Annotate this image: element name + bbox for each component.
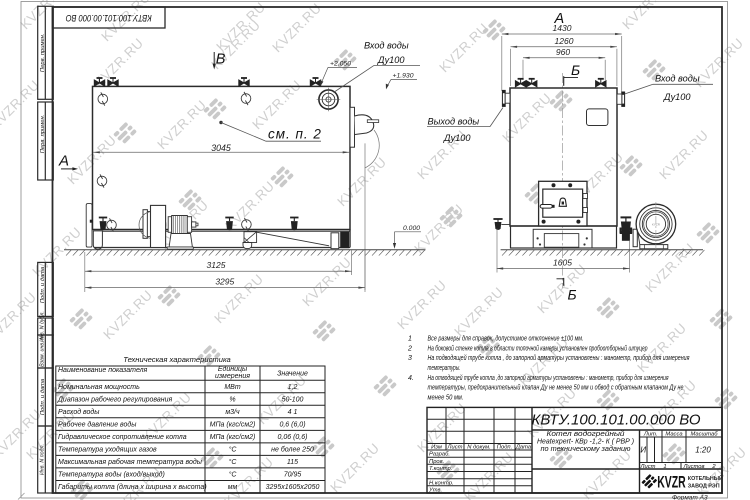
svg-text:Температура воды (вход/выход): Температура воды (вход/выход) bbox=[58, 471, 165, 479]
svg-text:В: В bbox=[216, 52, 226, 68]
svg-text:Ду100: Ду100 bbox=[377, 55, 405, 65]
svg-text:Масса: Масса bbox=[665, 431, 683, 437]
svg-text:1430: 1430 bbox=[553, 23, 572, 33]
svg-text:Б: Б bbox=[568, 287, 577, 303]
svg-text:Гидравлическое сопротивление к: Гидравлическое сопротивление котла bbox=[58, 433, 187, 441]
svg-text:Подп.: Подп. bbox=[497, 444, 512, 450]
svg-text:3045: 3045 bbox=[211, 143, 231, 153]
svg-text:Габариты котла (длина х ширина: Габариты котла (длина х ширина х высота) bbox=[58, 483, 207, 491]
svg-text:Масштаб: Масштаб bbox=[690, 431, 718, 437]
svg-text:МВт: МВт bbox=[224, 384, 241, 391]
svg-text:МПа (кгс/см2): МПа (кгс/см2) bbox=[210, 434, 256, 441]
svg-text:температуры.: температуры. bbox=[428, 365, 461, 372]
svg-text:N докум.: N докум. bbox=[467, 444, 490, 450]
svg-text:Вход воды: Вход воды bbox=[655, 74, 700, 84]
svg-text:И: И bbox=[640, 446, 646, 455]
svg-text:960: 960 bbox=[556, 47, 570, 57]
svg-text:+2.050: +2.050 bbox=[330, 61, 351, 68]
svg-text:не более 250: не более 250 bbox=[271, 446, 314, 454]
svg-text:Наименование показателя: Наименование показателя bbox=[58, 367, 148, 374]
svg-text:3: 3 bbox=[408, 355, 412, 362]
svg-text:Пров.: Пров. bbox=[429, 459, 444, 465]
svg-text:Перв. примен.: Перв. примен. bbox=[40, 34, 46, 73]
svg-text:3125: 3125 bbox=[207, 260, 226, 270]
svg-text:+1.930: +1.930 bbox=[393, 73, 414, 80]
svg-text:4 1: 4 1 bbox=[288, 409, 298, 416]
svg-text:температуры, предохранительный: температуры, предохранительный клапан Ду… bbox=[428, 384, 684, 392]
svg-text:КОТЕЛЬНЫЙ: КОТЕЛЬНЫЙ bbox=[688, 474, 723, 482]
svg-text:°С: °С bbox=[229, 458, 238, 466]
svg-text:Температура уходящих газов: Температура уходящих газов bbox=[58, 446, 157, 454]
svg-text:Дата: Дата bbox=[515, 444, 532, 450]
svg-text:по техническому заданию: по техническому заданию bbox=[541, 444, 632, 453]
svg-text:115: 115 bbox=[287, 459, 298, 466]
svg-text:0.000: 0.000 bbox=[403, 225, 420, 232]
svg-text:Перв. примен.: Перв. примен. bbox=[40, 115, 46, 154]
svg-text:1,2: 1,2 bbox=[288, 384, 298, 391]
svg-text:мм: мм bbox=[228, 484, 238, 491]
svg-text:1:20: 1:20 bbox=[695, 446, 711, 455]
svg-text:°С: °С bbox=[229, 446, 238, 454]
svg-text:КВТУ.100.101.00.000 ВО: КВТУ.100.101.00.000 ВО bbox=[532, 413, 701, 429]
svg-text:Н.контр.: Н.контр. bbox=[429, 480, 454, 486]
svg-text:КВТУ.100.101.00.000 ВО: КВТУ.100.101.00.000 ВО bbox=[65, 12, 151, 23]
svg-text:А: А bbox=[58, 153, 69, 170]
svg-text:Подп. и дата: Подп. и дата bbox=[40, 378, 46, 415]
svg-text:Выход воды: Выход воды bbox=[428, 116, 480, 126]
svg-text:1605: 1605 bbox=[553, 258, 572, 268]
svg-text:На отводящей трубе котла ,до з: На отводящей трубе котла ,до запорной ар… bbox=[428, 374, 669, 382]
svg-text:измерения: измерения bbox=[215, 373, 250, 380]
svg-text:Формат А3: Формат А3 bbox=[672, 494, 708, 500]
svg-text:Изм: Изм bbox=[431, 444, 442, 450]
svg-text:1260: 1260 bbox=[555, 36, 574, 46]
svg-text:Вход воды: Вход воды bbox=[364, 41, 409, 51]
svg-text:Б: Б bbox=[571, 62, 580, 78]
svg-text:Разраб.: Разраб. bbox=[429, 452, 450, 458]
svg-text:менее 50 мм.: менее 50 мм. bbox=[428, 394, 464, 401]
svg-text:Взам. инв. N: Взам. инв. N bbox=[40, 336, 46, 367]
svg-text:Диапазон рабочего регулировани: Диапазон рабочего регулирования bbox=[57, 396, 173, 404]
svg-text:3295х1605х2050: 3295х1605х2050 bbox=[266, 484, 320, 491]
svg-text:4.: 4. bbox=[408, 375, 414, 382]
svg-text:Расход воды: Расход воды bbox=[58, 408, 100, 416]
svg-text:Лист: Лист bbox=[640, 464, 656, 470]
svg-text:50-100: 50-100 bbox=[282, 397, 304, 404]
svg-text:Единицы: Единицы bbox=[218, 365, 248, 373]
svg-text:Подп. и дата: Подп. и дата bbox=[40, 266, 46, 303]
svg-text:Т.контр.: Т.контр. bbox=[429, 466, 452, 472]
svg-text:На боковой стенке котла в обла: На боковой стенке котла в области топочн… bbox=[428, 344, 648, 352]
svg-text:1: 1 bbox=[408, 336, 412, 343]
svg-text:см. п. 2: см. п. 2 bbox=[268, 127, 322, 142]
svg-text:°С: °С bbox=[229, 471, 238, 479]
svg-text:Инв. N подл.: Инв. N подл. bbox=[40, 444, 46, 475]
svg-text:Номинальная мощность: Номинальная мощность bbox=[58, 384, 140, 391]
svg-text:ЗАВОД РЭП: ЗАВОД РЭП bbox=[688, 484, 720, 490]
svg-text:1: 1 bbox=[663, 464, 666, 470]
svg-text:Значение: Значение bbox=[277, 371, 308, 378]
svg-text:KVZR: KVZR bbox=[657, 473, 686, 492]
svg-text:Техническая характеристика: Техническая характеристика bbox=[123, 355, 231, 364]
svg-text:%: % bbox=[229, 397, 235, 404]
svg-text:Ду100: Ду100 bbox=[443, 133, 471, 143]
svg-text:МПа (кгс/см2): МПа (кгс/см2) bbox=[210, 422, 256, 429]
svg-text:Ду100: Ду100 bbox=[663, 92, 691, 102]
svg-text:Лит.: Лит. bbox=[643, 431, 658, 437]
svg-text:0,6 (6,0): 0,6 (6,0) bbox=[279, 422, 305, 429]
svg-text:Все размеры для справок, допус: Все размеры для справок, допустимое откл… bbox=[428, 335, 584, 343]
svg-text:3295: 3295 bbox=[215, 276, 234, 286]
svg-text:Утв.: Утв. bbox=[428, 487, 442, 493]
svg-text:Рабочее давление воды: Рабочее давление воды bbox=[58, 421, 137, 429]
svg-text:Максимальная рабочая температу: Максимальная рабочая температура воды bbox=[58, 458, 203, 466]
svg-text:Лист: Лист bbox=[447, 444, 463, 450]
svg-text:0,06 (0,6): 0,06 (0,6) bbox=[278, 434, 308, 441]
svg-text:KVZR: KVZR bbox=[652, 223, 661, 227]
svg-text:Листов: Листов bbox=[682, 464, 704, 470]
svg-text:На подводящей трубе котла ,: На подводящей трубе котла , до запорной … bbox=[428, 354, 690, 362]
svg-text:70/95: 70/95 bbox=[284, 472, 302, 479]
svg-text:м3/ч: м3/ч bbox=[225, 409, 240, 416]
svg-text:2: 2 bbox=[407, 345, 412, 352]
